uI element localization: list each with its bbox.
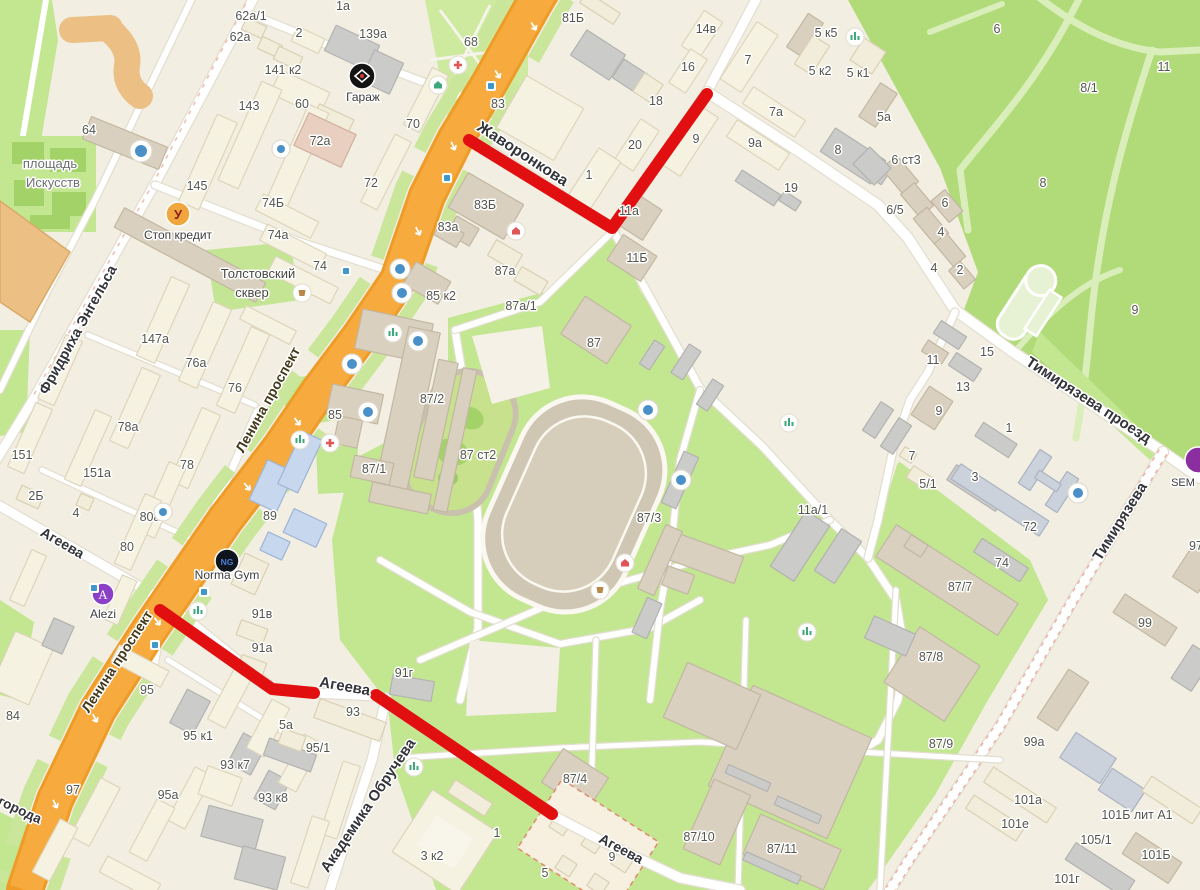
svg-text:3 к2: 3 к2 bbox=[421, 849, 444, 863]
svg-text:7: 7 bbox=[745, 53, 752, 67]
svg-text:95а: 95а bbox=[158, 788, 179, 802]
svg-text:87/9: 87/9 bbox=[929, 737, 953, 751]
svg-text:6: 6 bbox=[994, 22, 1001, 36]
svg-text:85 к2: 85 к2 bbox=[426, 289, 456, 303]
svg-text:9а: 9а bbox=[748, 136, 762, 150]
svg-text:20: 20 bbox=[628, 138, 642, 152]
svg-text:8: 8 bbox=[1040, 176, 1047, 190]
svg-text:68: 68 bbox=[464, 35, 478, 49]
svg-text:87/7: 87/7 bbox=[948, 580, 972, 594]
svg-text:101г: 101г bbox=[1054, 872, 1080, 886]
svg-text:11: 11 bbox=[1158, 60, 1171, 74]
svg-text:95 к1: 95 к1 bbox=[183, 729, 213, 743]
svg-text:87/8: 87/8 bbox=[919, 650, 943, 664]
svg-text:9: 9 bbox=[609, 850, 616, 864]
svg-text:7: 7 bbox=[909, 449, 916, 463]
svg-text:5 к1: 5 к1 bbox=[847, 66, 870, 80]
svg-text:91а: 91а bbox=[252, 641, 273, 655]
svg-text:Искусств: Искусств bbox=[26, 175, 80, 190]
svg-text:3: 3 bbox=[972, 470, 979, 484]
svg-text:91г: 91г bbox=[395, 666, 414, 680]
svg-text:74: 74 bbox=[313, 259, 327, 273]
svg-text:площадь: площадь bbox=[23, 156, 78, 171]
svg-text:19: 19 bbox=[784, 181, 798, 195]
svg-text:87/11: 87/11 bbox=[767, 842, 797, 856]
svg-text:87а/1: 87а/1 bbox=[505, 299, 536, 313]
svg-text:74а: 74а bbox=[268, 228, 289, 242]
svg-text:9: 9 bbox=[936, 404, 943, 418]
svg-text:81Б: 81Б bbox=[562, 11, 584, 25]
svg-text:141 к2: 141 к2 bbox=[265, 63, 302, 77]
svg-text:101Б: 101Б bbox=[1141, 848, 1170, 862]
svg-text:1а: 1а bbox=[336, 0, 350, 13]
svg-text:сквер: сквер bbox=[235, 285, 268, 300]
svg-text:15: 15 bbox=[980, 345, 994, 359]
svg-text:Alezi: Alezi bbox=[90, 607, 116, 621]
svg-text:Стоп кредит: Стоп кредит bbox=[144, 228, 213, 242]
svg-text:87/2: 87/2 bbox=[420, 392, 444, 406]
svg-text:1: 1 bbox=[586, 168, 593, 182]
svg-text:74: 74 bbox=[995, 556, 1009, 570]
svg-text:143: 143 bbox=[239, 99, 260, 113]
svg-text:У: У bbox=[174, 207, 183, 222]
svg-text:64: 64 bbox=[82, 123, 96, 137]
svg-text:78: 78 bbox=[180, 458, 194, 472]
svg-text:NG: NG bbox=[221, 557, 234, 567]
svg-text:151: 151 bbox=[12, 448, 33, 462]
svg-text:8/1: 8/1 bbox=[1080, 81, 1097, 95]
svg-text:6/5: 6/5 bbox=[886, 203, 903, 217]
svg-text:8: 8 bbox=[835, 143, 842, 157]
svg-text:5 к5: 5 к5 bbox=[815, 26, 838, 40]
svg-text:83: 83 bbox=[491, 97, 505, 111]
svg-text:9: 9 bbox=[1132, 303, 1139, 317]
svg-text:62а/1: 62а/1 bbox=[235, 9, 266, 23]
svg-text:87 ст2: 87 ст2 bbox=[460, 448, 496, 462]
svg-text:93: 93 bbox=[346, 705, 360, 719]
svg-text:139а: 139а bbox=[359, 27, 387, 41]
svg-text:5/1: 5/1 bbox=[919, 477, 936, 491]
svg-text:87/1: 87/1 bbox=[362, 462, 386, 476]
svg-text:Толстовский: Толстовский bbox=[221, 266, 295, 281]
svg-text:95: 95 bbox=[140, 683, 154, 697]
svg-text:72а: 72а bbox=[310, 134, 331, 148]
svg-text:72: 72 bbox=[364, 176, 378, 190]
svg-text:2: 2 bbox=[957, 263, 964, 277]
svg-text:4: 4 bbox=[73, 506, 80, 520]
svg-text:99: 99 bbox=[1138, 616, 1152, 630]
svg-text:11а/1: 11а/1 bbox=[798, 503, 828, 517]
svg-text:9: 9 bbox=[693, 132, 700, 146]
svg-text:85: 85 bbox=[328, 408, 342, 422]
svg-text:6 ст3: 6 ст3 bbox=[891, 153, 920, 167]
svg-text:76а: 76а bbox=[186, 356, 207, 370]
svg-text:87/4: 87/4 bbox=[563, 772, 587, 786]
svg-text:87: 87 bbox=[587, 336, 601, 350]
svg-text:97: 97 bbox=[66, 783, 80, 797]
svg-text:SEM: SEM bbox=[1171, 477, 1195, 489]
svg-text:93 к7: 93 к7 bbox=[220, 758, 250, 772]
svg-text:80: 80 bbox=[120, 540, 134, 554]
svg-text:78а: 78а bbox=[118, 420, 139, 434]
svg-text:13: 13 bbox=[956, 380, 970, 394]
svg-text:74Б: 74Б bbox=[262, 196, 284, 210]
svg-text:1: 1 bbox=[494, 826, 501, 840]
svg-text:89: 89 bbox=[263, 509, 277, 523]
svg-text:5: 5 bbox=[542, 866, 549, 880]
svg-text:151а: 151а bbox=[83, 466, 111, 480]
svg-text:87/10: 87/10 bbox=[683, 830, 714, 844]
svg-text:1: 1 bbox=[1006, 421, 1013, 435]
svg-text:95/1: 95/1 bbox=[306, 741, 330, 755]
svg-text:101е: 101е bbox=[1001, 817, 1029, 831]
svg-text:7а: 7а bbox=[769, 105, 783, 119]
svg-text:A: A bbox=[98, 587, 108, 602]
svg-text:5 к2: 5 к2 bbox=[809, 64, 832, 78]
svg-text:11а: 11а bbox=[619, 204, 639, 218]
svg-text:18: 18 bbox=[649, 94, 663, 108]
svg-text:101Б лит А1: 101Б лит А1 bbox=[1101, 808, 1172, 822]
svg-text:Гараж: Гараж bbox=[346, 90, 380, 104]
svg-text:2Б: 2Б bbox=[28, 489, 43, 503]
svg-text:87а: 87а bbox=[495, 264, 516, 278]
svg-text:99а: 99а bbox=[1024, 735, 1045, 749]
svg-text:76: 76 bbox=[228, 381, 242, 395]
svg-text:5а: 5а bbox=[279, 718, 293, 732]
svg-text:Norma Gym: Norma Gym bbox=[195, 568, 260, 582]
svg-text:97: 97 bbox=[1189, 539, 1200, 553]
svg-text:11Б: 11Б bbox=[626, 251, 647, 265]
svg-text:5а: 5а bbox=[877, 110, 891, 124]
svg-text:105/1: 105/1 bbox=[1080, 833, 1111, 847]
svg-text:93 к8: 93 к8 bbox=[258, 791, 288, 805]
svg-text:87/3: 87/3 bbox=[637, 511, 661, 525]
svg-text:84: 84 bbox=[6, 709, 20, 723]
svg-text:145: 145 bbox=[187, 179, 208, 193]
svg-text:72: 72 bbox=[1023, 520, 1037, 534]
svg-text:83Б: 83Б bbox=[474, 198, 496, 212]
svg-text:4: 4 bbox=[938, 225, 945, 239]
svg-text:14в: 14в bbox=[696, 22, 717, 36]
svg-text:16: 16 bbox=[681, 60, 695, 74]
svg-text:147а: 147а bbox=[141, 332, 169, 346]
svg-text:60: 60 bbox=[295, 97, 309, 111]
svg-text:70: 70 bbox=[406, 117, 420, 131]
svg-text:11: 11 bbox=[927, 353, 940, 367]
svg-text:91в: 91в bbox=[252, 607, 273, 621]
svg-text:2: 2 bbox=[296, 26, 303, 40]
svg-text:4: 4 bbox=[931, 261, 938, 275]
svg-text:62а: 62а bbox=[230, 30, 251, 44]
svg-text:83а: 83а bbox=[438, 220, 459, 234]
svg-text:6: 6 bbox=[942, 196, 949, 210]
svg-text:101а: 101а bbox=[1014, 793, 1042, 807]
